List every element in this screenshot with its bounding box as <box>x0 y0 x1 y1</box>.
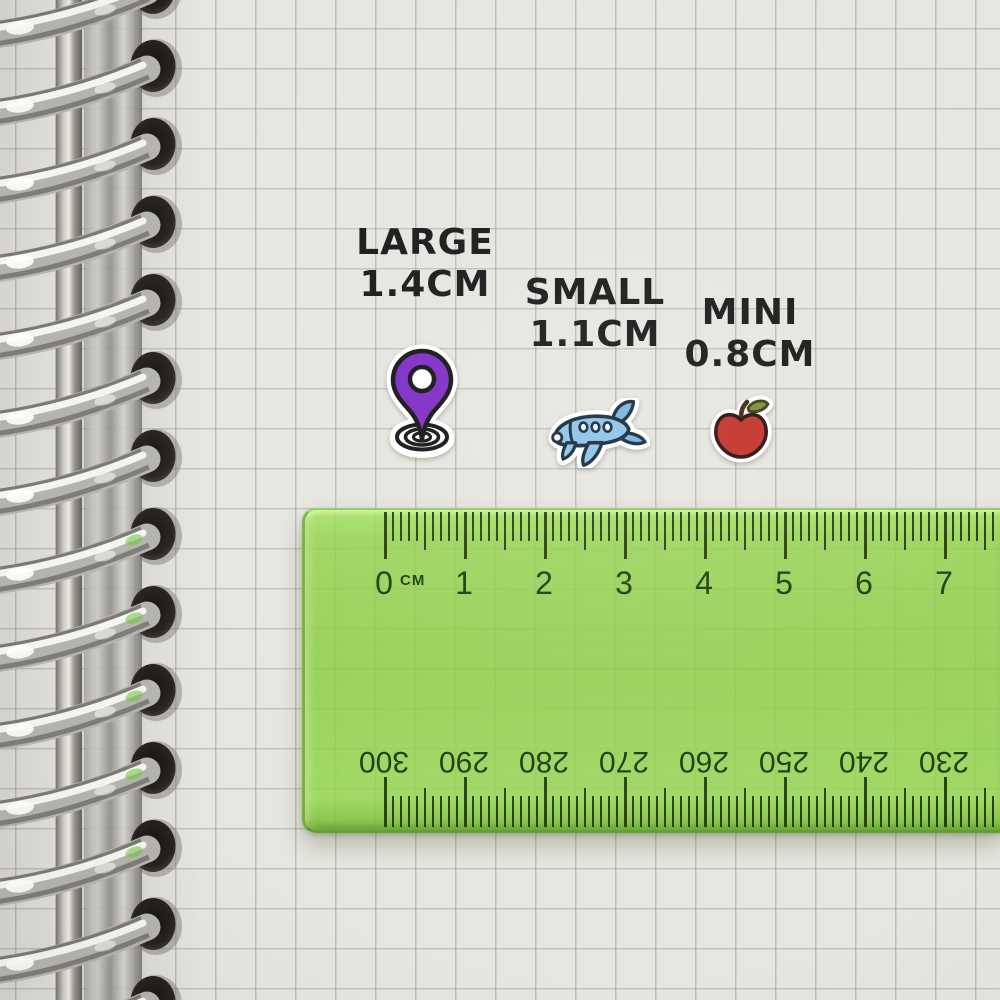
ruler-tick <box>904 512 906 550</box>
ruler-tick <box>488 796 490 827</box>
ruler-mm-number: 300 <box>344 744 424 778</box>
ruler-tick <box>488 512 490 541</box>
ruler-tick <box>952 796 954 827</box>
ruler-tick <box>664 512 666 550</box>
ruler-tick <box>472 796 474 827</box>
spiral-binding <box>0 0 1000 1000</box>
ruler-tick <box>512 512 514 541</box>
notebook-photo: LARGE 1.4CM SMALL 1.1CM MINI 0.8CM <box>0 0 1000 1000</box>
ruler-tick <box>520 796 522 827</box>
ruler-tick <box>856 512 858 541</box>
ruler-tick <box>608 512 610 541</box>
ruler-tick <box>872 796 874 827</box>
apple-body <box>716 415 766 457</box>
ruler-tick <box>808 512 810 541</box>
ruler-tick <box>672 796 674 827</box>
ruler-tick <box>560 512 562 541</box>
ruler-tick <box>936 796 938 827</box>
ruler-tick <box>448 512 450 541</box>
size-label-small: SMALL 1.1CM <box>510 272 680 357</box>
ruler-mm-number: 240 <box>824 744 904 778</box>
ruler-tick <box>880 512 882 541</box>
ruler-tick <box>712 796 714 827</box>
ruler-tick <box>456 512 458 541</box>
ruler-cm-number: 6 <box>834 565 894 602</box>
ruler-tick <box>640 512 642 541</box>
ruler-mm-number: 250 <box>744 744 824 778</box>
ruler-tick <box>736 796 738 827</box>
ruler-tick <box>472 512 474 541</box>
ruler-tick <box>696 796 698 827</box>
ruler-mm-number: 230 <box>904 744 984 778</box>
ruler-tick <box>688 796 690 827</box>
ruler-tick <box>768 796 770 827</box>
ruler-tick <box>928 796 930 827</box>
ruler-tick <box>592 796 594 827</box>
ruler-tick <box>920 796 922 827</box>
location-pin-sticker <box>384 342 458 460</box>
ruler-tick <box>608 796 610 827</box>
ruler-tick <box>712 512 714 541</box>
ruler-tick <box>704 512 707 559</box>
ruler-tick <box>392 512 394 541</box>
ruler-tick <box>960 512 962 541</box>
ruler-tick <box>632 796 634 827</box>
ruler-tick <box>416 796 418 827</box>
ruler-tick <box>760 796 762 827</box>
ruler-tick <box>640 796 642 827</box>
ruler-tick <box>704 777 707 827</box>
ruler-cm-number: 7 <box>914 565 974 602</box>
window <box>603 422 611 432</box>
ruler-mm-number: 280 <box>504 744 584 778</box>
ruler-tick <box>912 796 914 827</box>
apple-sticker <box>706 395 776 470</box>
ruler-tick <box>504 512 506 550</box>
ruler-tick <box>968 512 970 541</box>
ruler-tick <box>456 796 458 827</box>
ruler-tick <box>848 512 850 541</box>
ruler-tick <box>616 796 618 827</box>
ruler-tick <box>792 796 794 827</box>
ruler-tick <box>600 796 602 827</box>
ruler-tick <box>848 796 850 827</box>
ruler-tick <box>904 788 906 827</box>
size-label-small-name: SMALL <box>525 272 666 313</box>
ruler-tick <box>520 512 522 541</box>
ruler-tick <box>432 796 434 827</box>
ruler-tick <box>792 512 794 541</box>
ruler-tick <box>552 512 554 541</box>
ruler-tick <box>992 512 994 541</box>
ruler-tick <box>648 796 650 827</box>
ruler-tick <box>568 512 570 541</box>
ruler-tick <box>592 512 594 541</box>
ruler-tick <box>576 512 578 541</box>
ruler-tick <box>968 796 970 827</box>
ruler-tick <box>528 796 530 827</box>
pin-hole <box>410 367 434 391</box>
ruler-tick <box>400 512 402 541</box>
ruler-cm-number: 2 <box>514 565 574 602</box>
ruler-tick <box>960 796 962 827</box>
ruler-tick <box>840 512 842 541</box>
ruler-mm-number: 260 <box>664 744 744 778</box>
ruler-tick <box>576 796 578 827</box>
ruler-tick <box>424 788 426 827</box>
ruler-tick <box>832 796 834 827</box>
ruler-tick <box>616 512 618 541</box>
size-label-large-name: LARGE <box>356 222 494 263</box>
size-label-small-size: 1.1CM <box>510 314 680 356</box>
ruler-tick <box>544 512 547 559</box>
ruler-tick <box>816 512 818 541</box>
ruler-tick <box>584 512 586 550</box>
ruler-cm-number: 5 <box>754 565 814 602</box>
ruler-tick <box>696 512 698 541</box>
ruler-tick <box>816 796 818 827</box>
ruler-cm-number: 1 <box>434 565 494 602</box>
ruler-tick <box>512 796 514 827</box>
ruler-tick <box>552 796 554 827</box>
ruler-tick <box>656 512 658 541</box>
ruler-tick <box>992 796 994 827</box>
ruler-tick <box>888 796 890 827</box>
ruler-tick <box>664 788 666 827</box>
ruler-mm-number: 290 <box>424 744 504 778</box>
ruler-tick <box>840 796 842 827</box>
ruler-tick <box>432 512 434 541</box>
ruler-tick <box>824 512 826 550</box>
nose-ring <box>552 432 562 442</box>
window <box>579 422 587 432</box>
ruler-tick <box>688 512 690 541</box>
ruler-tick <box>480 796 482 827</box>
ruler-tick <box>768 512 770 541</box>
ruler-tick <box>888 512 890 541</box>
ruler-tick <box>752 796 754 827</box>
apple-icon <box>706 395 776 470</box>
ruler-tick <box>672 512 674 541</box>
airplane-icon <box>544 398 650 468</box>
ruler-tick <box>928 512 930 541</box>
size-label-mini-size: 0.8CM <box>665 334 835 376</box>
ruler-tick <box>656 796 658 827</box>
ruler-tick <box>976 796 978 827</box>
ruler-tick <box>784 512 787 559</box>
ruler-tick <box>480 512 482 541</box>
ruler-tick <box>728 796 730 827</box>
ruler-tick <box>560 796 562 827</box>
ruler-tick <box>624 512 627 559</box>
ruler-tick <box>464 512 467 559</box>
ruler-tick <box>896 796 898 827</box>
size-label-mini: MINI 0.8CM <box>665 292 835 377</box>
ruler-tick <box>680 796 682 827</box>
window <box>591 422 599 432</box>
ruler-tick <box>536 512 538 541</box>
ruler-tick <box>408 796 410 827</box>
ruler-tick <box>744 512 746 550</box>
ruler-tick <box>952 512 954 541</box>
ruler-tick <box>976 512 978 541</box>
location-pin-icon <box>384 342 458 460</box>
ruler-tick <box>736 512 738 541</box>
ruler-tick <box>920 512 922 541</box>
ruler-tick <box>408 512 410 541</box>
ruler-tick <box>392 796 394 827</box>
ruler-tick <box>880 796 882 827</box>
ruler-tick <box>832 512 834 541</box>
ruler-tick <box>416 512 418 541</box>
ruler-tick <box>720 512 722 541</box>
ruler-tick <box>800 796 802 827</box>
ruler-tick <box>944 777 947 827</box>
ruler-tick <box>728 512 730 541</box>
ruler-tick <box>760 512 762 541</box>
green-ruler: 01234567 CM 300290280270260250240230 <box>302 508 1000 833</box>
ruler-tick <box>680 512 682 541</box>
ruler-mm-number: 270 <box>584 744 664 778</box>
ruler-tick <box>936 512 938 541</box>
ruler-tick <box>824 788 826 827</box>
size-label-large: LARGE 1.4CM <box>340 222 510 307</box>
ruler-tick <box>544 777 547 827</box>
ruler-tick <box>984 788 986 827</box>
ruler-tick <box>496 512 498 541</box>
ruler-tick <box>440 796 442 827</box>
ruler-tick <box>856 796 858 827</box>
ruler-tick <box>944 512 947 559</box>
ruler-tick <box>400 796 402 827</box>
ruler-tick <box>536 796 538 827</box>
ruler-tick <box>864 512 867 559</box>
ruler-tick <box>800 512 802 541</box>
ruler-tick <box>776 512 778 541</box>
size-label-mini-name: MINI <box>702 292 799 333</box>
ruler-tick <box>632 512 634 541</box>
ruler-tick <box>896 512 898 541</box>
ruler-tick <box>464 777 467 827</box>
airplane-sticker <box>544 398 650 468</box>
ruler-cm-number: 4 <box>674 565 734 602</box>
ruler-tick <box>984 512 986 550</box>
ruler-tick <box>528 512 530 541</box>
ruler-cm-number: 3 <box>594 565 654 602</box>
ruler-unit-label: CM <box>400 572 425 589</box>
ruler-tick <box>600 512 602 541</box>
ruler-tick <box>424 512 426 550</box>
size-label-large-size: 1.4CM <box>340 264 510 306</box>
ruler-tick <box>776 796 778 827</box>
ruler-tick <box>496 796 498 827</box>
ruler-tick <box>744 788 746 827</box>
ruler-tick <box>568 796 570 827</box>
ruler-tick <box>912 512 914 541</box>
ruler-tick <box>384 512 387 559</box>
ruler-tick <box>720 796 722 827</box>
ruler-tick <box>808 796 810 827</box>
ruler-tick <box>864 777 867 827</box>
ruler-tick <box>648 512 650 541</box>
ruler-tick <box>872 512 874 541</box>
ruler-tick <box>504 788 506 827</box>
ruler-tick <box>440 512 442 541</box>
ruler-tick <box>384 777 387 827</box>
ruler-tick <box>624 777 627 827</box>
ruler-tick <box>448 796 450 827</box>
ruler-tick <box>584 788 586 827</box>
ruler-tick <box>752 512 754 541</box>
ruler-tick <box>784 777 787 827</box>
